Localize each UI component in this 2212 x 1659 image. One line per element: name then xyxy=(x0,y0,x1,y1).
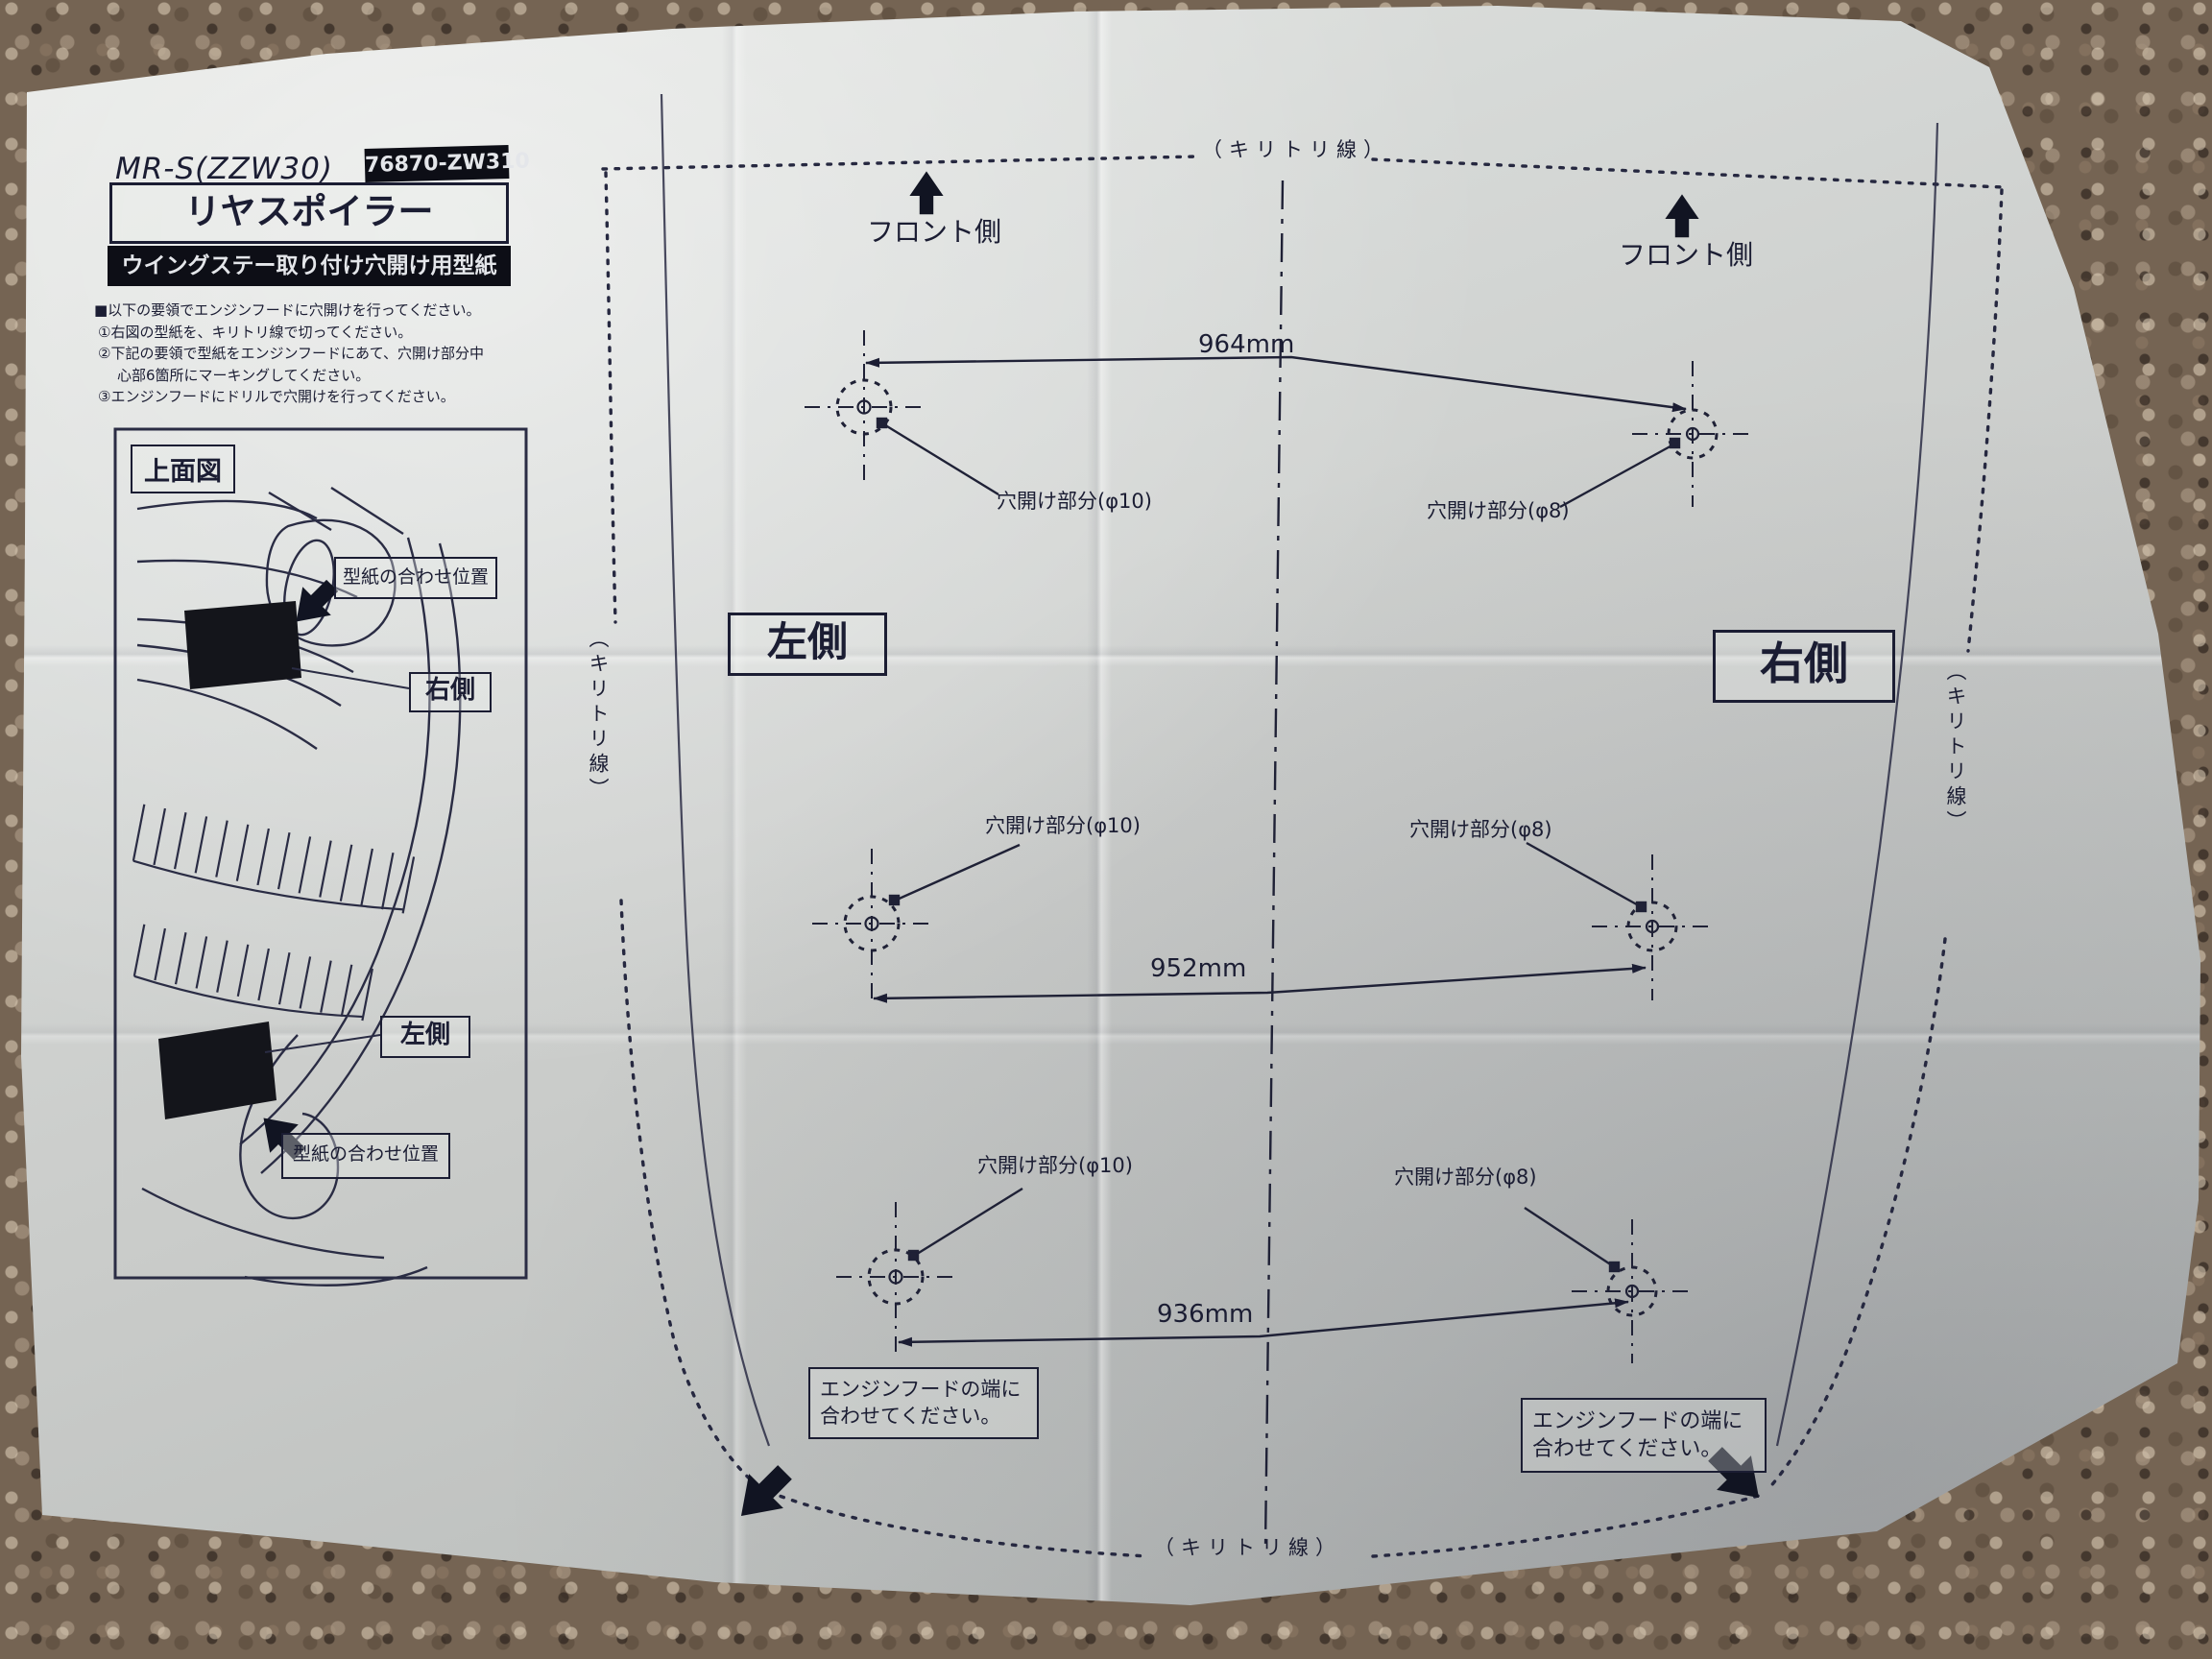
part-number-badge: 76870-ZW310 xyxy=(365,145,510,182)
cut-line-label-left: （キリトリ線） xyxy=(584,628,613,916)
template-paper: MR-S(ZZW30) 76870-ZW310 リヤスポイラー ウイングステー取… xyxy=(0,0,2212,1659)
hood-louvers-upper xyxy=(132,805,414,919)
dimension-bottom-936mm: 936mm xyxy=(1157,1300,1253,1329)
instruction-step-2: ②下記の要領で型紙をエンジンフードにあて、穴開け部分中心部6箇所にマーキングして… xyxy=(98,343,490,386)
hood-edge-note-left: エンジンフードの端に合わせてください。 xyxy=(808,1367,1039,1439)
hole-phi8-row1 xyxy=(1632,361,1753,507)
hood-louvers-lower xyxy=(133,925,373,1026)
hole-phi10-row1 xyxy=(805,330,924,482)
sheet-subtitle-bar: ウイングステー取り付け穴開け用型紙 xyxy=(108,246,511,286)
front-side-label-left: フロント側 xyxy=(867,211,1001,250)
model-label: MR-S(ZZW30) xyxy=(115,152,333,186)
cut-line-outline xyxy=(603,156,2003,1556)
template-patch-left xyxy=(158,1022,276,1119)
template-right-side-label: 右側 xyxy=(1713,630,1895,703)
cut-line-label-top: （キリトリ線） xyxy=(1202,134,1390,163)
align-position-label-bottom: 型紙の合わせ位置 xyxy=(281,1133,450,1179)
sheet-title: リヤスポイラー xyxy=(109,182,509,244)
hole-phi10-row3 xyxy=(836,1202,955,1354)
hood-center-line xyxy=(1265,180,1283,1548)
dimension-middle-952mm: 952mm xyxy=(1150,954,1246,983)
leader-lines xyxy=(878,419,1679,1271)
cut-line-label-right: （キリトリ線） xyxy=(1941,661,1970,949)
sketch-right-side-label: 右側 xyxy=(409,672,492,712)
instructions-intro: ■以下の要領でエンジンフードに穴開けを行ってください。 xyxy=(94,300,490,322)
hole-phi8-label-row2: 穴開け部分(φ8) xyxy=(1409,814,1552,843)
hole-phi8-label-row1: 穴開け部分(φ8) xyxy=(1427,495,1570,524)
top-view-title: 上面図 xyxy=(131,445,235,493)
instruction-step-3: ③エンジンフードにドリルで穴開けを行ってください。 xyxy=(98,386,490,408)
hood-edge-lines xyxy=(661,94,1937,1446)
front-side-arrow-right xyxy=(1665,194,1698,237)
hole-phi10-label-row1: 穴開け部分(φ10) xyxy=(997,486,1152,515)
dimension-top-964mm: 964mm xyxy=(1198,330,1294,359)
template-patch-right xyxy=(184,601,301,689)
hole-phi8-row3 xyxy=(1572,1219,1693,1363)
hole-phi8-label-row3: 穴開け部分(φ8) xyxy=(1394,1162,1537,1190)
hood-edge-note-right: エンジンフードの端に合わせてください。 xyxy=(1521,1398,1767,1473)
hood-edge-arrow-left xyxy=(724,1455,802,1533)
hole-phi10-label-row2: 穴開け部分(φ10) xyxy=(985,810,1141,839)
front-side-label-right: フロント側 xyxy=(1619,234,1753,273)
sketch-left-side-label: 左側 xyxy=(380,1016,470,1058)
direction-arrows xyxy=(724,171,1776,1533)
hole-phi8-row2 xyxy=(1592,854,1713,1000)
align-position-label-top: 型紙の合わせ位置 xyxy=(334,557,497,599)
instructions-block: ■以下の要領でエンジンフードに穴開けを行ってください。 ①右図の型紙を、キリトリ… xyxy=(94,300,490,408)
cut-line-label-bottom: （キリトリ線） xyxy=(1154,1532,1342,1561)
hole-phi10-label-row3: 穴開け部分(φ10) xyxy=(977,1150,1133,1179)
instruction-step-1: ①右図の型紙を、キリトリ線で切ってください。 xyxy=(98,322,490,344)
hole-phi10-row2 xyxy=(812,849,931,1002)
template-left-side-label: 左側 xyxy=(728,613,887,676)
front-side-arrow-left xyxy=(909,171,943,214)
photo-of-drilling-template-sheet: MR-S(ZZW30) 76870-ZW310 リヤスポイラー ウイングステー取… xyxy=(0,0,2212,1659)
